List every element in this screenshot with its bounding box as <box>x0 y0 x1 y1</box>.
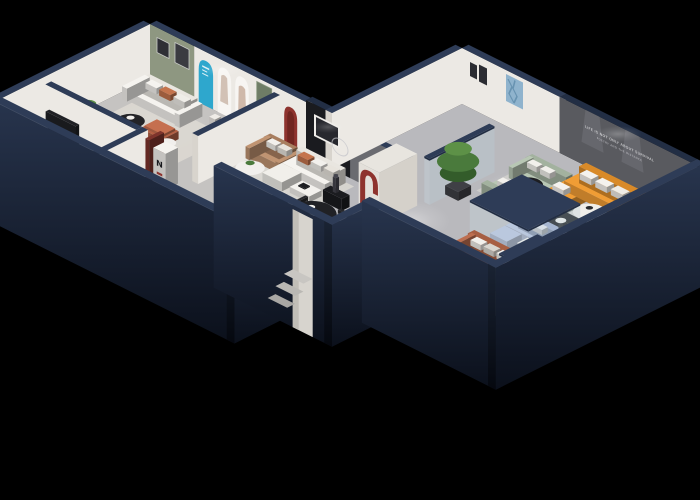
wall-spot-glow-black <box>312 121 344 133</box>
render-canvas: LIFE IS NOT ONLY ABOUT SURVIVALPOETRY AN… <box>0 0 700 500</box>
tree-foliage-top <box>444 142 472 156</box>
floorplan-scene-svg: LIFE IS NOT ONLY ABOUT SURVIVALPOETRY AN… <box>0 0 700 500</box>
coffee-table-decor-a <box>126 116 134 120</box>
statue-figure <box>333 175 339 193</box>
coffee-table-marble-decor <box>586 206 593 210</box>
wall-spot-glow-accent <box>594 126 642 142</box>
statue-figure-head <box>334 174 339 176</box>
coffee-table-c-plant <box>246 161 255 166</box>
wall-spot-glow-gallery <box>202 63 242 77</box>
